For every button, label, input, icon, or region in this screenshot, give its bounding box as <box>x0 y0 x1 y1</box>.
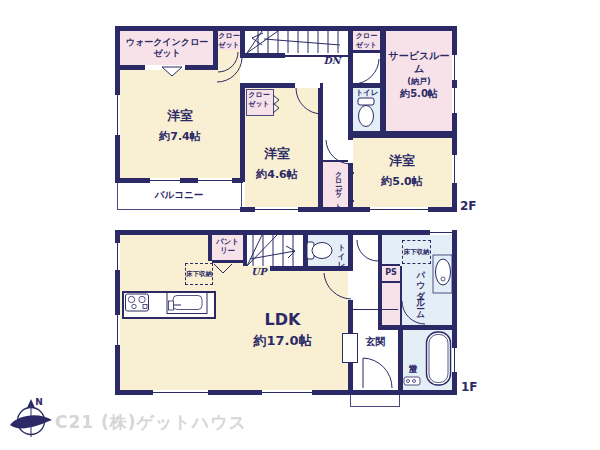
stairs-up-label: UP <box>247 266 271 278</box>
wic-label: ウォークインクローゼット <box>122 37 212 60</box>
wall <box>243 235 247 266</box>
wall <box>212 260 243 263</box>
bedroom-50-name: 洋室 <box>389 153 415 168</box>
bedroom-46-name: 洋室 <box>264 146 290 161</box>
balcony-label: バルコニー <box>118 189 240 201</box>
bedroom-46-label: 洋室 約4.6帖 <box>237 143 317 183</box>
ldk-label: LDK 約17.0帖 <box>230 310 335 350</box>
wall <box>318 83 323 207</box>
window-line <box>117 315 118 345</box>
bedroom-50-label: 洋室 約5.0帖 <box>362 150 442 190</box>
toilet-2f-label: トイレ <box>353 88 381 97</box>
entrance-step-line <box>353 309 398 310</box>
window-line <box>150 180 180 181</box>
wall <box>322 160 348 162</box>
window-line <box>117 243 118 270</box>
window-line <box>198 180 232 181</box>
bedroom-74-name: 洋室 <box>167 108 193 123</box>
bedroom-50-size: 約5.0帖 <box>381 175 423 188</box>
wall <box>353 50 380 53</box>
room-powder-lower <box>400 266 452 325</box>
bedroom-74-size: 約7.4帖 <box>159 130 201 143</box>
wall <box>270 266 353 271</box>
wall <box>303 230 308 271</box>
window-line <box>454 155 455 183</box>
pantry-label: パントリー <box>213 237 242 256</box>
hallway-1f <box>353 235 378 390</box>
wall <box>398 330 403 390</box>
bedroom-74-label: 洋室 約7.4帖 <box>130 105 230 145</box>
wall <box>382 264 400 266</box>
kitchen-counter <box>122 291 216 319</box>
window-line <box>255 209 298 210</box>
wall <box>208 235 212 261</box>
window-line <box>153 392 208 393</box>
floorplan-canvas: 床下収納 床下収納 <box>0 0 600 450</box>
porch <box>350 395 400 407</box>
stairs-2f-icon <box>247 31 340 53</box>
ldk-size: 約17.0帖 <box>253 333 311 348</box>
wall <box>382 281 400 283</box>
door-gap <box>240 58 245 83</box>
underfloor-storage-kitchen: 床下収納 <box>185 263 213 285</box>
closet-46-label: クローゼット <box>247 91 271 109</box>
service-room-sub: (納戸) <box>407 77 430 86</box>
powder-room-label: パウダールーム <box>412 250 426 328</box>
window-line <box>262 392 312 393</box>
stairs-dn-label: DN <box>318 55 346 67</box>
floor1-label: 1F <box>461 380 487 395</box>
pipe-space-label: PS <box>382 268 400 278</box>
floor2-label: 2F <box>460 199 486 214</box>
service-room-size: 約5.0帖 <box>400 88 438 99</box>
underfloor-storage-kitchen-label: 床下収納 <box>186 270 212 278</box>
bathroom-label: 浴室 <box>404 342 417 372</box>
wall <box>115 26 457 31</box>
closet-service-label: クローゼット <box>353 32 380 50</box>
window-line <box>454 88 455 113</box>
door-gap <box>348 271 353 300</box>
compass-north-label: N <box>33 397 45 408</box>
stairs-area-1f <box>247 235 303 266</box>
bedroom-46-size: 約4.6帖 <box>256 168 298 181</box>
compass-icon <box>10 399 52 437</box>
service-room-label: サービスルーム (納戸) 約5.0帖 <box>386 50 452 100</box>
window-line <box>117 95 118 135</box>
window-line <box>454 348 455 372</box>
closet-vertical-label: クローゼット <box>329 165 342 207</box>
window-line <box>370 209 428 210</box>
wall <box>115 230 457 235</box>
closet-top-label: クローゼット <box>217 32 241 50</box>
wall <box>452 26 457 212</box>
door-gap <box>295 83 320 88</box>
window-line <box>454 55 455 80</box>
wall <box>353 131 457 138</box>
door-gap <box>145 65 185 70</box>
hall-storage-strip <box>382 283 400 330</box>
window-line <box>430 232 452 233</box>
wall <box>348 163 353 207</box>
wall <box>400 266 402 330</box>
wall <box>245 53 285 58</box>
ldk-name: LDK <box>265 310 301 329</box>
toilet-1f-label: トイレ <box>334 238 346 265</box>
service-room-name: サービスルーム <box>389 50 450 74</box>
watermark: C21 (株)ゲットハウス <box>55 411 247 434</box>
entrance-label: 玄関 <box>353 336 398 349</box>
